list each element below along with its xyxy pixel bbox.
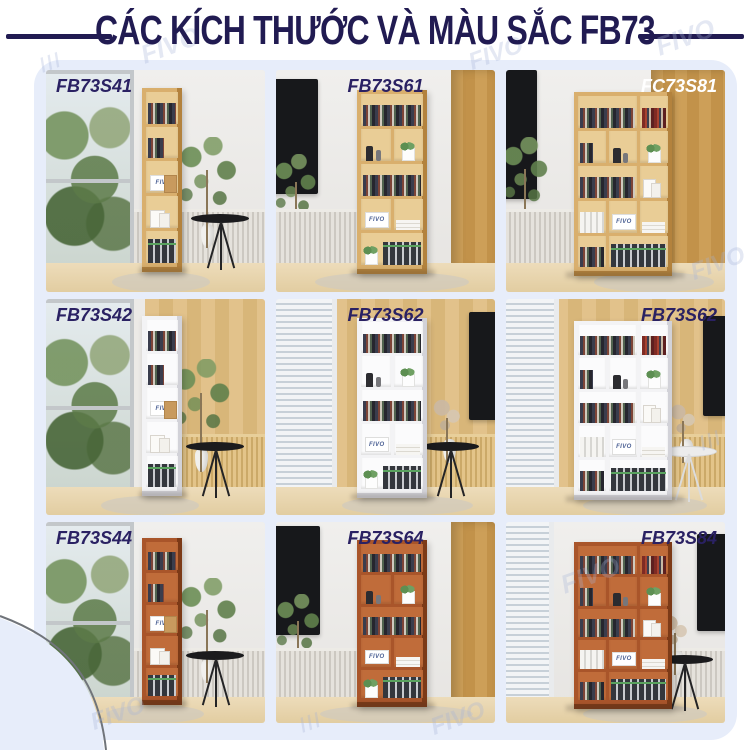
bookshelf: FIVO <box>574 92 672 276</box>
side-table <box>191 214 249 270</box>
product-photo-cell: FIVO FB73S84 <box>506 522 725 723</box>
small-plant <box>402 148 415 161</box>
decor-objects <box>613 375 620 389</box>
photo-frames <box>643 405 656 423</box>
books <box>363 175 421 195</box>
shelf-cubby <box>361 322 423 353</box>
window-greenery <box>46 74 130 266</box>
shelf-cubby <box>394 356 424 387</box>
shelf-cubby <box>578 460 606 491</box>
shelf-cubby <box>640 577 668 605</box>
side-table <box>186 442 244 498</box>
books <box>580 143 593 163</box>
books <box>580 336 635 356</box>
shelf-cubby: FIVO <box>146 161 178 193</box>
books <box>580 588 593 606</box>
table-leg <box>684 663 686 711</box>
table-leg <box>215 659 217 707</box>
bookshelf: FIVO <box>357 540 427 707</box>
tv-screen <box>703 316 725 415</box>
shelf-cubby <box>640 166 668 198</box>
product-code-label: FB73S64 <box>276 528 495 549</box>
books <box>580 619 635 637</box>
room-scene: FIVO <box>276 522 495 723</box>
window-greenery <box>46 526 130 699</box>
shelf-cubby <box>394 424 424 455</box>
side-table <box>186 651 244 707</box>
shelf-cubby <box>361 233 423 265</box>
shelf-cubby <box>146 573 178 601</box>
books <box>148 103 176 123</box>
shelf-cubby <box>361 129 391 161</box>
fivo-card: FIVO <box>612 214 635 230</box>
shelf-cubby <box>146 668 178 696</box>
books <box>580 556 635 574</box>
room-scene: FIVO <box>46 70 265 292</box>
shelf-cubby <box>578 609 637 637</box>
shelf-cubby <box>578 131 606 163</box>
ring-binders <box>148 239 176 263</box>
books <box>580 403 635 423</box>
shelf-cubby <box>609 236 668 268</box>
table-leg <box>688 454 703 501</box>
product-photo-cell: FIVO FB73S62 <box>506 299 725 515</box>
shelf-cubby <box>146 92 178 124</box>
small-plant <box>648 376 661 389</box>
product-code-label: FB73S41 <box>56 76 132 97</box>
books <box>363 401 421 421</box>
shelf-cubby <box>146 422 178 453</box>
room-scene: FIVO <box>46 522 265 723</box>
shelf-cubby <box>609 358 637 389</box>
shelf-cubby <box>361 164 423 196</box>
shelf-cubby <box>394 575 424 603</box>
shelf-cubby <box>578 577 606 605</box>
product-code-label: FB73S62 <box>641 305 717 326</box>
shelf-cubby: FIVO <box>609 201 637 233</box>
fivo-card: FIVO <box>365 437 389 453</box>
book-stack <box>642 222 665 233</box>
decor-objects <box>366 146 374 161</box>
shelf-cubby: FIVO <box>361 638 391 666</box>
product-code-label: FB73S84 <box>641 528 717 549</box>
window-blinds <box>506 522 554 699</box>
table-leg <box>215 450 217 498</box>
shelf-cubby <box>146 231 178 263</box>
small-plant <box>402 374 415 387</box>
room-scene: FIVO <box>276 299 495 515</box>
book-stack <box>642 659 665 669</box>
books <box>363 334 421 354</box>
books <box>580 177 635 197</box>
books <box>580 437 604 457</box>
shelf-cubby <box>578 546 637 574</box>
decor-objects <box>366 591 374 604</box>
bookshelf: FIVO <box>357 318 427 497</box>
small-plant <box>648 593 661 606</box>
shelf-cubby: FIVO <box>146 388 178 419</box>
product-grid: FIVO FB73S41 FIVO <box>46 70 725 723</box>
table-leg <box>684 662 699 709</box>
ring-binders <box>611 679 666 700</box>
table-leg <box>450 449 465 496</box>
fivo-card: FIVO <box>365 212 389 228</box>
books <box>642 108 666 128</box>
window-greenery <box>46 303 130 489</box>
shelf-cubby <box>578 166 637 198</box>
wood-door-panel <box>451 70 495 270</box>
shelf-cubby <box>146 636 178 664</box>
ring-binders <box>383 677 421 698</box>
bookshelf: FIVO <box>357 90 427 274</box>
shelf-cubby <box>640 96 668 128</box>
shelf-cubby <box>361 390 423 421</box>
books <box>642 556 666 574</box>
small-plant <box>365 252 378 265</box>
shelf-cubby <box>609 131 637 163</box>
shelf-cubby: FIVO <box>361 424 391 455</box>
room-scene: FIVO <box>46 299 265 515</box>
bookshelf: FIVO <box>574 321 672 500</box>
books <box>148 365 164 385</box>
bookshelf: FIVO <box>142 88 182 272</box>
small-plant <box>402 591 415 604</box>
books <box>148 584 164 602</box>
shelf-cubby: FIVO <box>609 640 637 668</box>
photo-frames <box>643 620 656 637</box>
ring-binders <box>383 242 421 266</box>
shelf-cubby <box>578 392 637 423</box>
table-leg <box>220 222 235 269</box>
photo-frames <box>150 435 165 453</box>
shelf-cubby <box>640 131 668 163</box>
shelf-cubby <box>578 201 606 233</box>
ring-binders <box>611 244 666 268</box>
side-table <box>421 442 479 498</box>
small-plant <box>365 685 378 698</box>
product-code-label: FB73S44 <box>56 528 132 549</box>
fivo-card: FIVO <box>612 439 635 455</box>
bookshelf: FIVO <box>142 538 182 705</box>
shelf-cubby <box>578 236 606 268</box>
decor-objects <box>613 148 620 163</box>
shelf-cubby <box>361 94 423 126</box>
books <box>363 554 421 572</box>
bookshelf: FIVO <box>142 316 182 495</box>
books <box>148 552 176 570</box>
shelf-cubby <box>640 640 668 668</box>
books <box>580 212 604 232</box>
small-plant <box>365 476 378 489</box>
product-code-label: FC73S81 <box>641 76 717 97</box>
window <box>46 70 134 270</box>
photo-frames <box>150 210 165 229</box>
shelf-cubby <box>640 325 668 356</box>
shelf-cubby: FIVO <box>361 199 391 231</box>
window <box>46 522 134 703</box>
fivo-card: FIVO <box>365 650 389 664</box>
books <box>580 650 604 668</box>
shelf-cubby <box>146 320 178 351</box>
room-scene: FIVO <box>506 70 725 292</box>
storage-box <box>164 616 177 633</box>
books <box>580 370 593 390</box>
shelf-cubby <box>640 201 668 233</box>
shelf-cubby <box>578 426 606 457</box>
table-leg <box>215 449 230 496</box>
decor-objects <box>613 593 620 606</box>
books <box>363 105 421 125</box>
product-photo-cell: FIVO FB73S64 <box>276 522 495 723</box>
ring-binders <box>383 466 421 489</box>
window-blinds <box>506 299 559 489</box>
product-photo-cell: FIVO FB73S62 <box>276 299 495 515</box>
book-stack <box>396 657 420 667</box>
product-photo-cell: FIVO FC73S81 <box>506 70 725 292</box>
window-frame <box>46 621 130 625</box>
photo-frames <box>150 648 165 665</box>
product-photo-cell: FIVO FB73S41 <box>46 70 265 292</box>
shelf-cubby <box>146 354 178 385</box>
shelf-cubby <box>361 607 423 635</box>
wood-door-panel <box>451 522 495 707</box>
room-scene: FIVO <box>276 70 495 292</box>
shelf-cubby <box>361 670 423 698</box>
shelf-cubby <box>609 577 637 605</box>
room-scene: FIVO <box>506 522 725 723</box>
ring-binders <box>611 468 666 491</box>
shelf-cubby <box>394 638 424 666</box>
shelf-cubby: FIVO <box>146 605 178 633</box>
books <box>580 247 604 267</box>
shelf-cubby <box>578 358 606 389</box>
shelf-cubby <box>394 129 424 161</box>
product-code-label: FB73S42 <box>56 305 132 326</box>
table-leg <box>215 658 230 705</box>
shelf-cubby <box>640 392 668 423</box>
page-title: CÁC KÍCH THƯỚC VÀ MÀU SẮC FB73 <box>95 6 655 54</box>
window-blinds <box>276 299 337 489</box>
product-code-label: FB73S61 <box>276 76 495 97</box>
books <box>642 336 666 356</box>
storage-box <box>164 175 177 194</box>
rug <box>101 496 200 515</box>
shelf-cubby <box>146 542 178 570</box>
shelf-cubby <box>640 609 668 637</box>
shelf-cubby <box>578 96 637 128</box>
shelf-cubby <box>640 426 668 457</box>
shelf-cubby <box>361 575 391 603</box>
ring-binders <box>148 464 176 487</box>
shelf-cubby <box>146 127 178 159</box>
shelf-cubby <box>640 546 668 574</box>
decor-objects <box>366 373 374 387</box>
book-stack <box>396 220 420 231</box>
page-header: CÁC KÍCH THƯỚC VÀ MÀU SẮC FB73 <box>0 6 750 60</box>
shelf-cubby <box>578 640 606 668</box>
rug <box>112 272 211 292</box>
window-frame <box>46 179 130 183</box>
room-scene: FIVO <box>506 299 725 515</box>
shelf-cubby <box>361 458 423 489</box>
books <box>148 331 176 351</box>
shelf-cubby: FIVO <box>609 426 637 457</box>
shelf-cubby <box>609 672 668 700</box>
shelf-cubby <box>609 460 668 491</box>
shelf-cubby <box>361 356 391 387</box>
shelf-cubby <box>578 672 606 700</box>
table-leg <box>688 454 690 502</box>
shelf-cubby <box>578 325 637 356</box>
shelf-cubby <box>394 199 424 231</box>
window-frame <box>46 406 130 410</box>
window <box>46 299 134 493</box>
table-leg <box>450 450 452 498</box>
bookshelf: FIVO <box>574 542 672 709</box>
product-photo-cell: FIVO FB73S61 <box>276 70 495 292</box>
shelf-cubby <box>146 456 178 487</box>
rug <box>107 705 203 723</box>
books <box>363 617 421 635</box>
table-leg <box>220 222 222 270</box>
product-photo-cell: FIVO FB73S42 <box>46 299 265 515</box>
book-stack <box>642 447 665 457</box>
shelf-cubby <box>146 196 178 228</box>
books <box>148 138 164 158</box>
ring-binders <box>148 675 176 696</box>
small-plant <box>648 150 661 163</box>
shelf-cubby <box>640 358 668 389</box>
product-photo-cell: FIVO FB73S44 <box>46 522 265 723</box>
books <box>580 471 604 491</box>
books <box>580 108 635 128</box>
books <box>580 682 604 700</box>
product-code-label: FB73S62 <box>276 305 495 326</box>
photo-frames <box>643 179 656 198</box>
storage-box <box>164 401 177 419</box>
fivo-card: FIVO <box>612 652 635 666</box>
book-stack <box>396 444 420 454</box>
